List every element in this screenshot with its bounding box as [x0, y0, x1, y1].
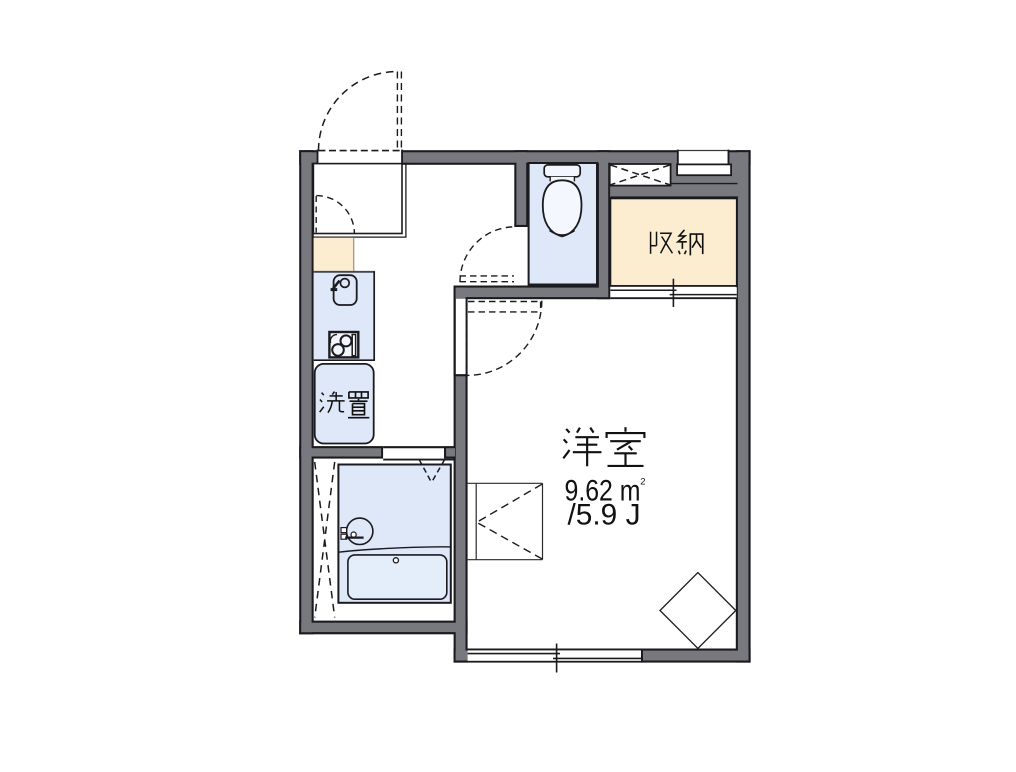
svg-text:2: 2 — [640, 476, 645, 487]
svg-text:/5.9 J: /5.9 J — [568, 498, 641, 531]
